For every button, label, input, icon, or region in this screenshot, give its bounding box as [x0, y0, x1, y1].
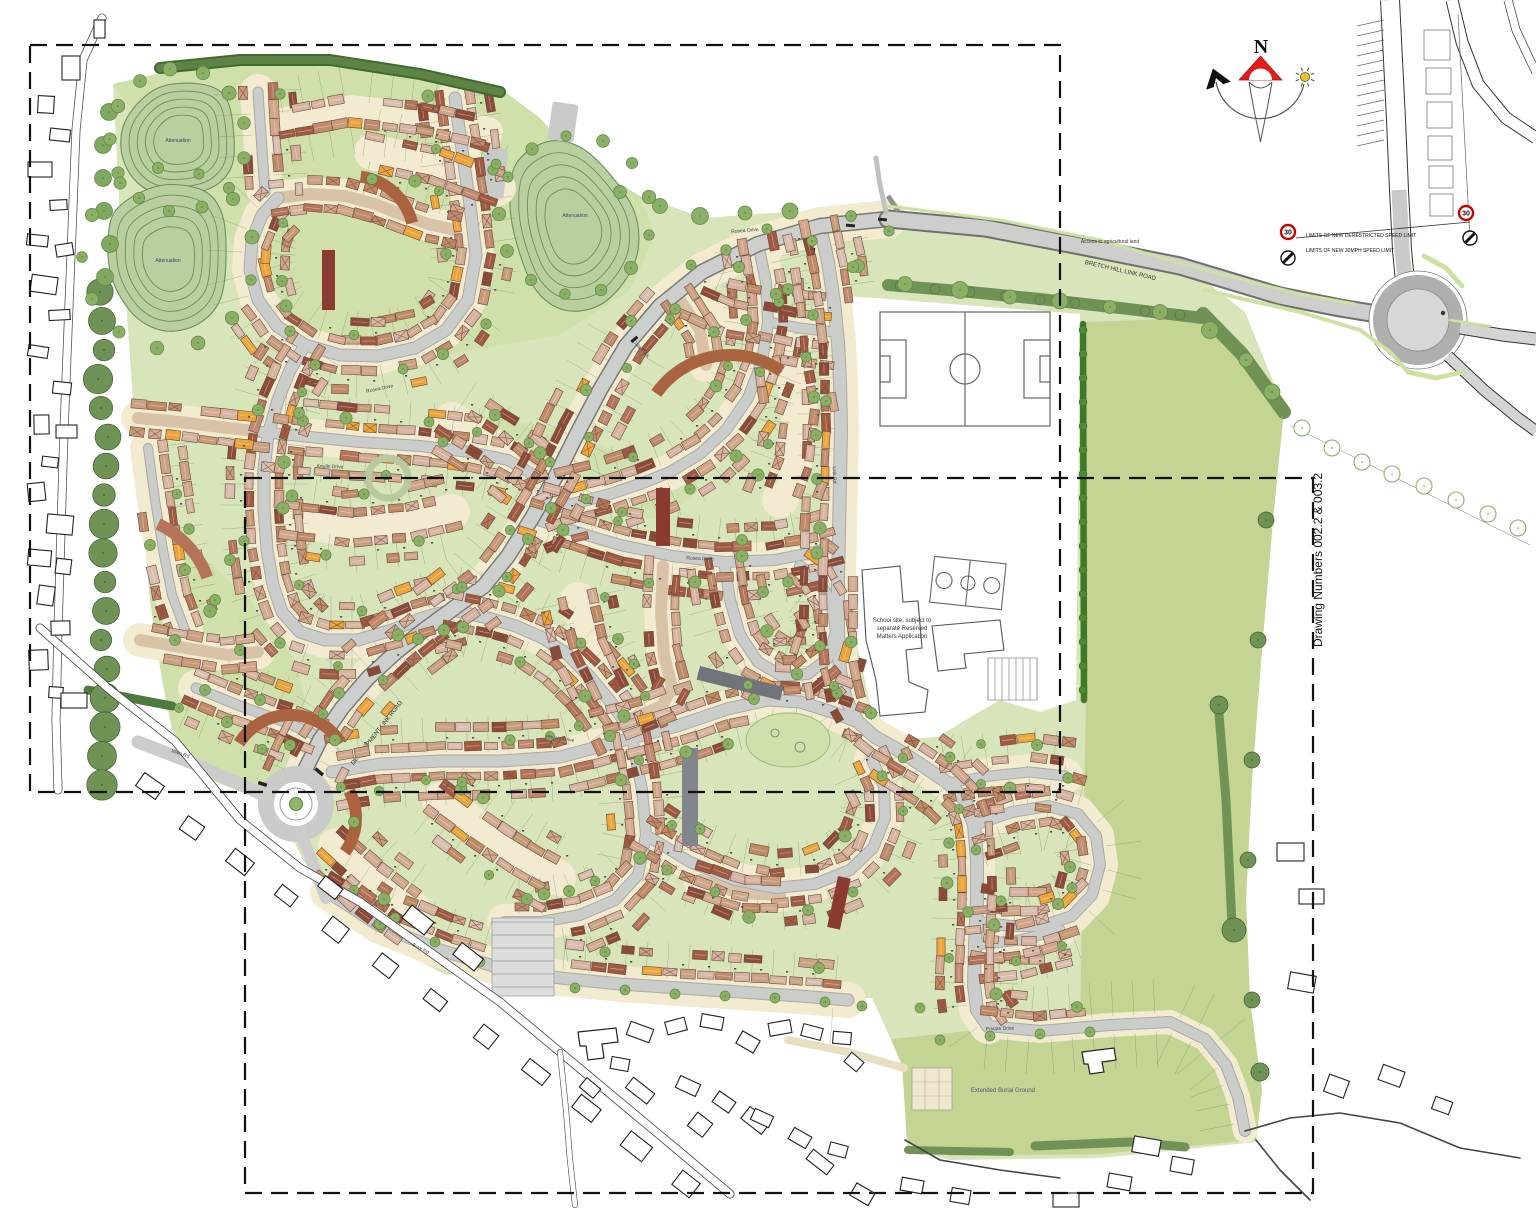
- svg-text:School site, subject to: School site, subject to: [873, 618, 932, 624]
- svg-text:Private Drive: Private Drive: [986, 1025, 1015, 1032]
- svg-text:Link Rd: Link Rd: [831, 466, 838, 483]
- svg-text:separate Reserved: separate Reserved: [877, 626, 928, 632]
- svg-text:Attenuation: Attenuation: [562, 213, 588, 219]
- svg-text:30: 30: [1462, 211, 1470, 218]
- svg-text:LIMITS OF NEW 30MPH SPEED LIMI: LIMITS OF NEW 30MPH SPEED LIMIT: [1306, 248, 1394, 254]
- svg-text:Attenuation: Attenuation: [155, 258, 181, 264]
- svg-text:Attenuation: Attenuation: [165, 138, 191, 144]
- svg-text:Drawing Numbers 002.2 & 003.2: Drawing Numbers 002.2 & 003.2: [1311, 473, 1325, 647]
- svg-text:30: 30: [1284, 230, 1292, 237]
- svg-text:LIMITS OF NEW DERESTRICTED SPE: LIMITS OF NEW DERESTRICTED SPEED LIMIT: [1306, 233, 1416, 239]
- svg-text:Extended Burial Ground: Extended Burial Ground: [971, 1088, 1035, 1094]
- svg-text:N: N: [1254, 36, 1269, 58]
- svg-text:Rosea Drive: Rosea Drive: [686, 556, 714, 563]
- svg-text:Access to agricultural land: Access to agricultural land: [1081, 239, 1140, 245]
- svg-text:Matters Application: Matters Application: [877, 634, 928, 640]
- svg-text:Knolls Drive: Knolls Drive: [317, 464, 344, 471]
